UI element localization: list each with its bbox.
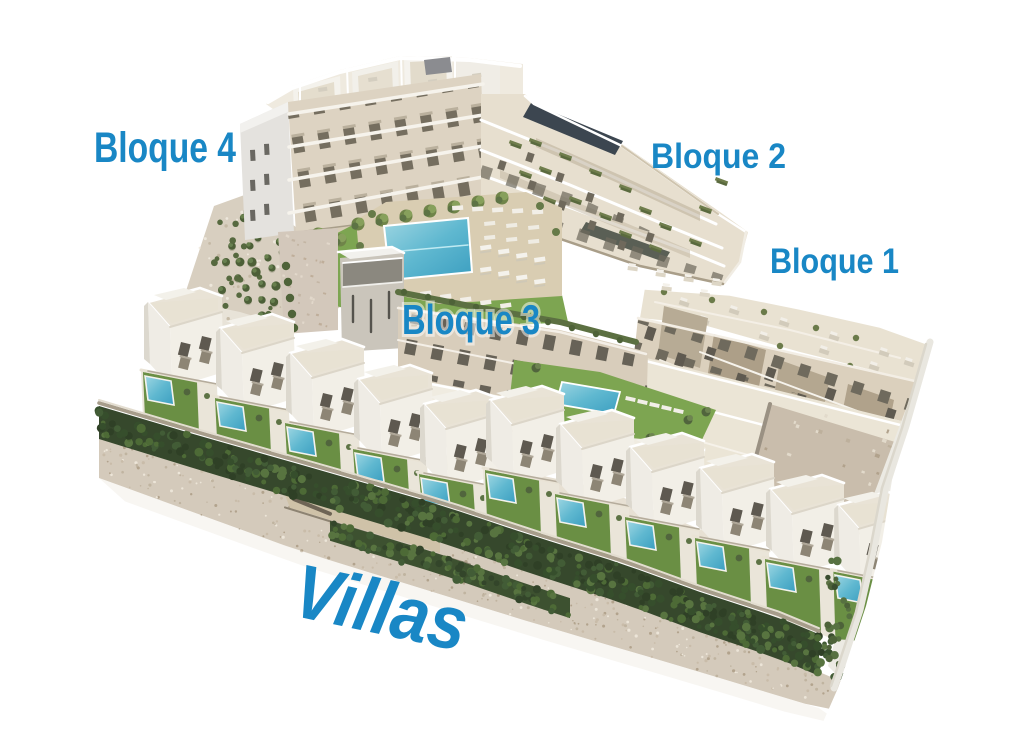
- svg-text:Bloque 3: Bloque 3: [402, 296, 540, 343]
- svg-text:Bloque 4: Bloque 4: [94, 124, 236, 172]
- svg-text:Bloque 1: Bloque 1: [770, 242, 899, 281]
- svg-text:Bloque 2: Bloque 2: [651, 137, 786, 176]
